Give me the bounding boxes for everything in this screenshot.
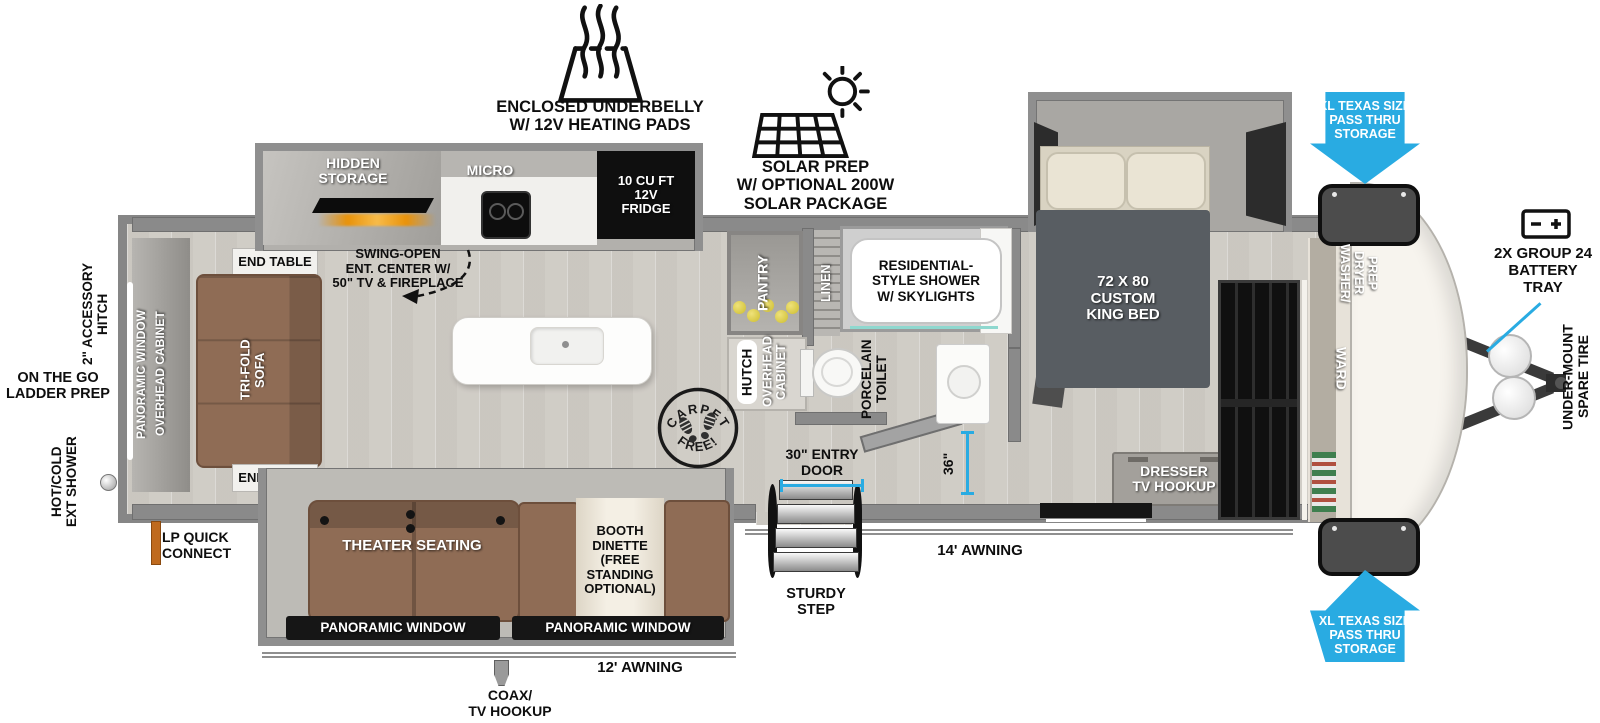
bedroom-tv-rail — [1046, 519, 1146, 522]
bed-pillow — [1046, 152, 1126, 210]
coax-label: COAX/ TV HOOKUP — [458, 688, 562, 719]
vanity-sink — [947, 365, 981, 399]
entry-steps — [768, 478, 862, 582]
bathroom-vanity — [936, 344, 990, 424]
ladder-prep-label: ON THE GO LADDER PREP — [2, 370, 114, 402]
theater-seating-label: THEATER SEATING — [314, 538, 510, 555]
step-tread — [773, 552, 859, 572]
dresser-slot — [1128, 457, 1148, 462]
dim-36-line — [966, 431, 969, 495]
step-tread — [775, 528, 857, 548]
shower-label: RESIDENTIAL- STYLE SHOWER W/ SKYLIGHTS — [872, 258, 980, 303]
underbelly-label: ENCLOSED UNDERBELLY W/ 12V HEATING PADS — [490, 98, 710, 135]
micro-label: MICRO — [452, 163, 528, 178]
tick — [780, 479, 783, 492]
coax-connector-icon — [494, 660, 509, 686]
tick — [961, 431, 974, 434]
battery-tray-label: 2X GROUP 24 BATTERY TRAY — [1486, 246, 1600, 296]
accessory-hitch-label: 2" ACCESSORY HITCH — [78, 238, 112, 390]
bathroom-wall-left — [802, 228, 814, 346]
wardrobe — [1218, 280, 1300, 520]
awning-14-label: 14' AWNING — [924, 543, 1036, 560]
toilet-label: PORCELAIN TOILET — [856, 326, 892, 432]
pass-thru-door-bottom — [1318, 518, 1420, 576]
living-panoramic-window-left: PANORAMIC WINDOW — [286, 616, 500, 640]
king-bed: 72 X 80 CUSTOM KING BED — [1036, 210, 1210, 388]
cupholder — [320, 516, 329, 525]
rear-panoramic-window-label: PANORAMIC WINDOW — [134, 288, 149, 460]
king-bed-label: 72 X 80 CUSTOM KING BED — [1086, 274, 1159, 324]
burner — [489, 203, 506, 220]
living-panoramic-window-right: PANORAMIC WINDOW — [512, 616, 724, 640]
dim-36-label: 36" — [938, 438, 960, 490]
solar-label: SOLAR PREP W/ OPTIONAL 200W SOLAR PACKAG… — [718, 158, 913, 213]
washer-dryer-label: WASHER/ DRYER PREP — [1336, 226, 1380, 320]
shower-pan: RESIDENTIAL- STYLE SHOWER W/ SKYLIGHTS — [850, 238, 1002, 324]
propane-tank — [1492, 376, 1536, 420]
hutch-label: HUTCH — [737, 340, 757, 404]
tick — [961, 492, 974, 495]
carpet-free-stamp: CARPET FREE! — [656, 386, 740, 470]
bedroom-wall-lower — [1008, 348, 1021, 442]
fridge: 10 CU FT 12V FRIDGE — [597, 151, 695, 239]
dresser-label: DRESSER TV HOOKUP — [1132, 464, 1215, 495]
ent-center-arrow — [392, 244, 476, 308]
propane-tank — [1488, 334, 1532, 378]
wall-bottom-rear — [132, 504, 260, 520]
island-faucet-icon — [562, 341, 569, 348]
ext-shower-label: HOT/COLD EXT SHOWER — [46, 426, 82, 538]
hidden-storage-label: HIDDEN STORAGE — [298, 156, 408, 187]
ext-shower-knob-icon — [100, 474, 117, 491]
fridge-label: 10 CU FT 12V FRIDGE — [618, 174, 674, 217]
entry-door-label: 30" ENTRY DOOR — [770, 447, 874, 478]
sturdy-step-label: STURDY STEP — [772, 586, 860, 618]
ward-label: WARD — [1330, 336, 1352, 400]
booth-dinette-bench — [518, 502, 580, 622]
heating-pads-icon — [542, 4, 657, 106]
canned-goods — [733, 301, 746, 314]
stored-clothes — [1312, 452, 1336, 512]
bed-pillow — [1126, 152, 1206, 210]
wall-top-rear — [132, 217, 258, 232]
tri-fold-sofa-label: TRI-FOLD SOFA — [236, 326, 270, 414]
booth-dinette-label: BOOTH DINETTE (FREE STANDING OPTIONAL) — [572, 524, 668, 597]
battery-icon — [1520, 204, 1572, 242]
entry-door-dim-line — [780, 484, 864, 487]
entertainment-center-tv — [312, 198, 434, 213]
cooktop — [481, 191, 531, 239]
pantry-label: PANTRY — [750, 238, 776, 328]
bedroom-window-right — [1246, 122, 1286, 226]
rear-overhead-cabinet-label: OVERHEAD CABINET — [153, 292, 168, 456]
rv-floorplan-diagram: ENCLOSED UNDERBELLY W/ 12V HEATING PADS … — [0, 0, 1600, 723]
spare-tire-label: UNDER-MOUNT SPARE TIRE — [1556, 292, 1596, 462]
wardrobe-mirror-edge — [1302, 280, 1307, 520]
toilet-seat — [821, 357, 853, 387]
cupholder — [496, 516, 505, 525]
awning-12-rail — [262, 652, 736, 658]
bedroom-tv — [1040, 503, 1152, 518]
canned-goods — [775, 310, 788, 323]
dresser-slot — [1200, 457, 1220, 462]
rear-panoramic-window — [127, 282, 133, 460]
overhead-cabinet-label: OVERHEAD CABINET — [760, 338, 790, 406]
svg-text:FREE!: FREE! — [675, 433, 721, 454]
pass-thru-arrow-top: XL TEXAS SIZE PASS THRU STORAGE — [1310, 92, 1420, 184]
pass-thru-arrow-bottom: XL TEXAS SIZE PASS THRU STORAGE — [1310, 570, 1420, 662]
linen-label: LINEN — [814, 236, 840, 330]
booth-dinette-bench — [664, 500, 730, 622]
burner — [507, 203, 524, 220]
end-table-top: END TABLE — [232, 248, 318, 276]
lp-quick-connect-icon — [151, 521, 161, 565]
theater-seating — [308, 500, 520, 622]
svg-text:CARPET: CARPET — [663, 401, 733, 431]
solar-panel-icon — [752, 66, 874, 160]
fireplace-glow — [318, 214, 436, 226]
cupholder — [406, 524, 415, 533]
wardrobe-divider — [1221, 399, 1297, 407]
awning-12-label: 12' AWNING — [590, 660, 690, 677]
cupholder — [406, 510, 415, 519]
step-tread — [777, 504, 855, 524]
lp-quick-connect-label: LP QUICK CONNECT — [162, 530, 254, 561]
canned-goods — [786, 301, 799, 314]
tick — [861, 479, 864, 492]
step-tread — [779, 480, 853, 500]
